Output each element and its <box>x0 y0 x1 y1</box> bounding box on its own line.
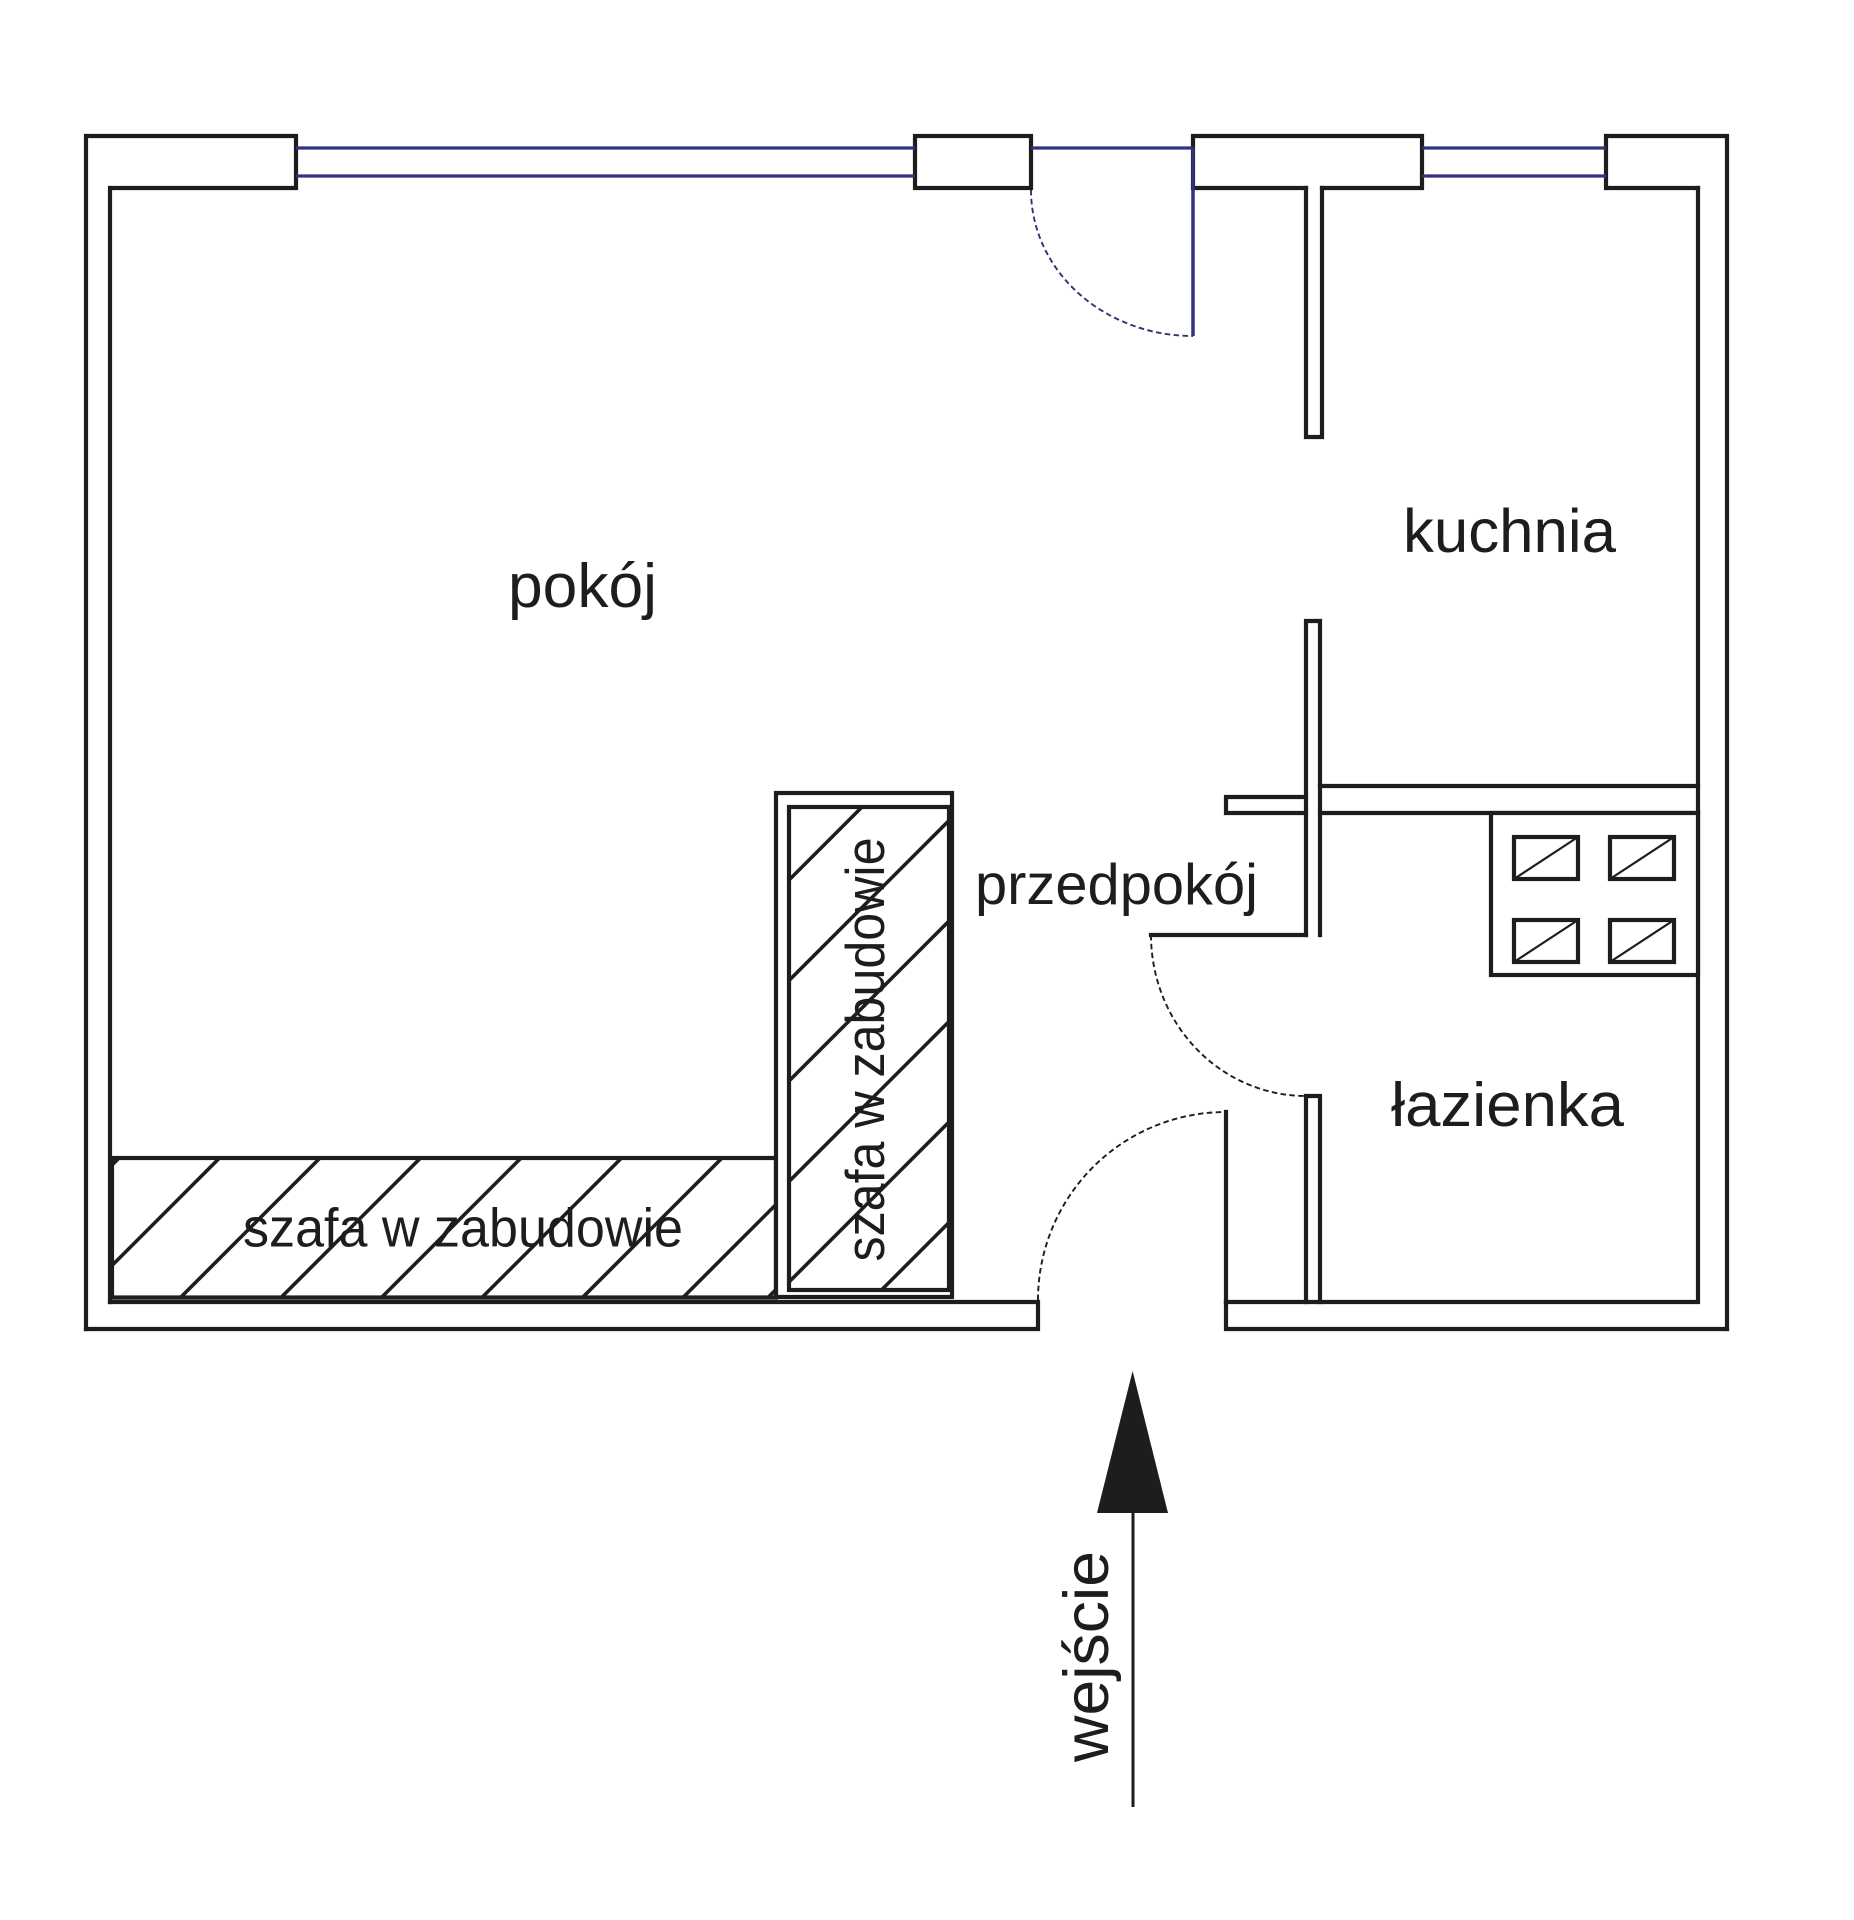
svg-text:kuchnia: kuchnia <box>1403 497 1616 565</box>
svg-text:przedpokój: przedpokój <box>975 853 1258 917</box>
svg-text:wejście: wejście <box>1052 1551 1122 1763</box>
svg-text:szafa w zabudowie: szafa w zabudowie <box>834 838 896 1262</box>
svg-text:pokój: pokój <box>508 552 657 621</box>
svg-text:szafa w zabudowie: szafa w zabudowie <box>243 1197 683 1259</box>
svg-text:łazienka: łazienka <box>1391 1071 1625 1140</box>
